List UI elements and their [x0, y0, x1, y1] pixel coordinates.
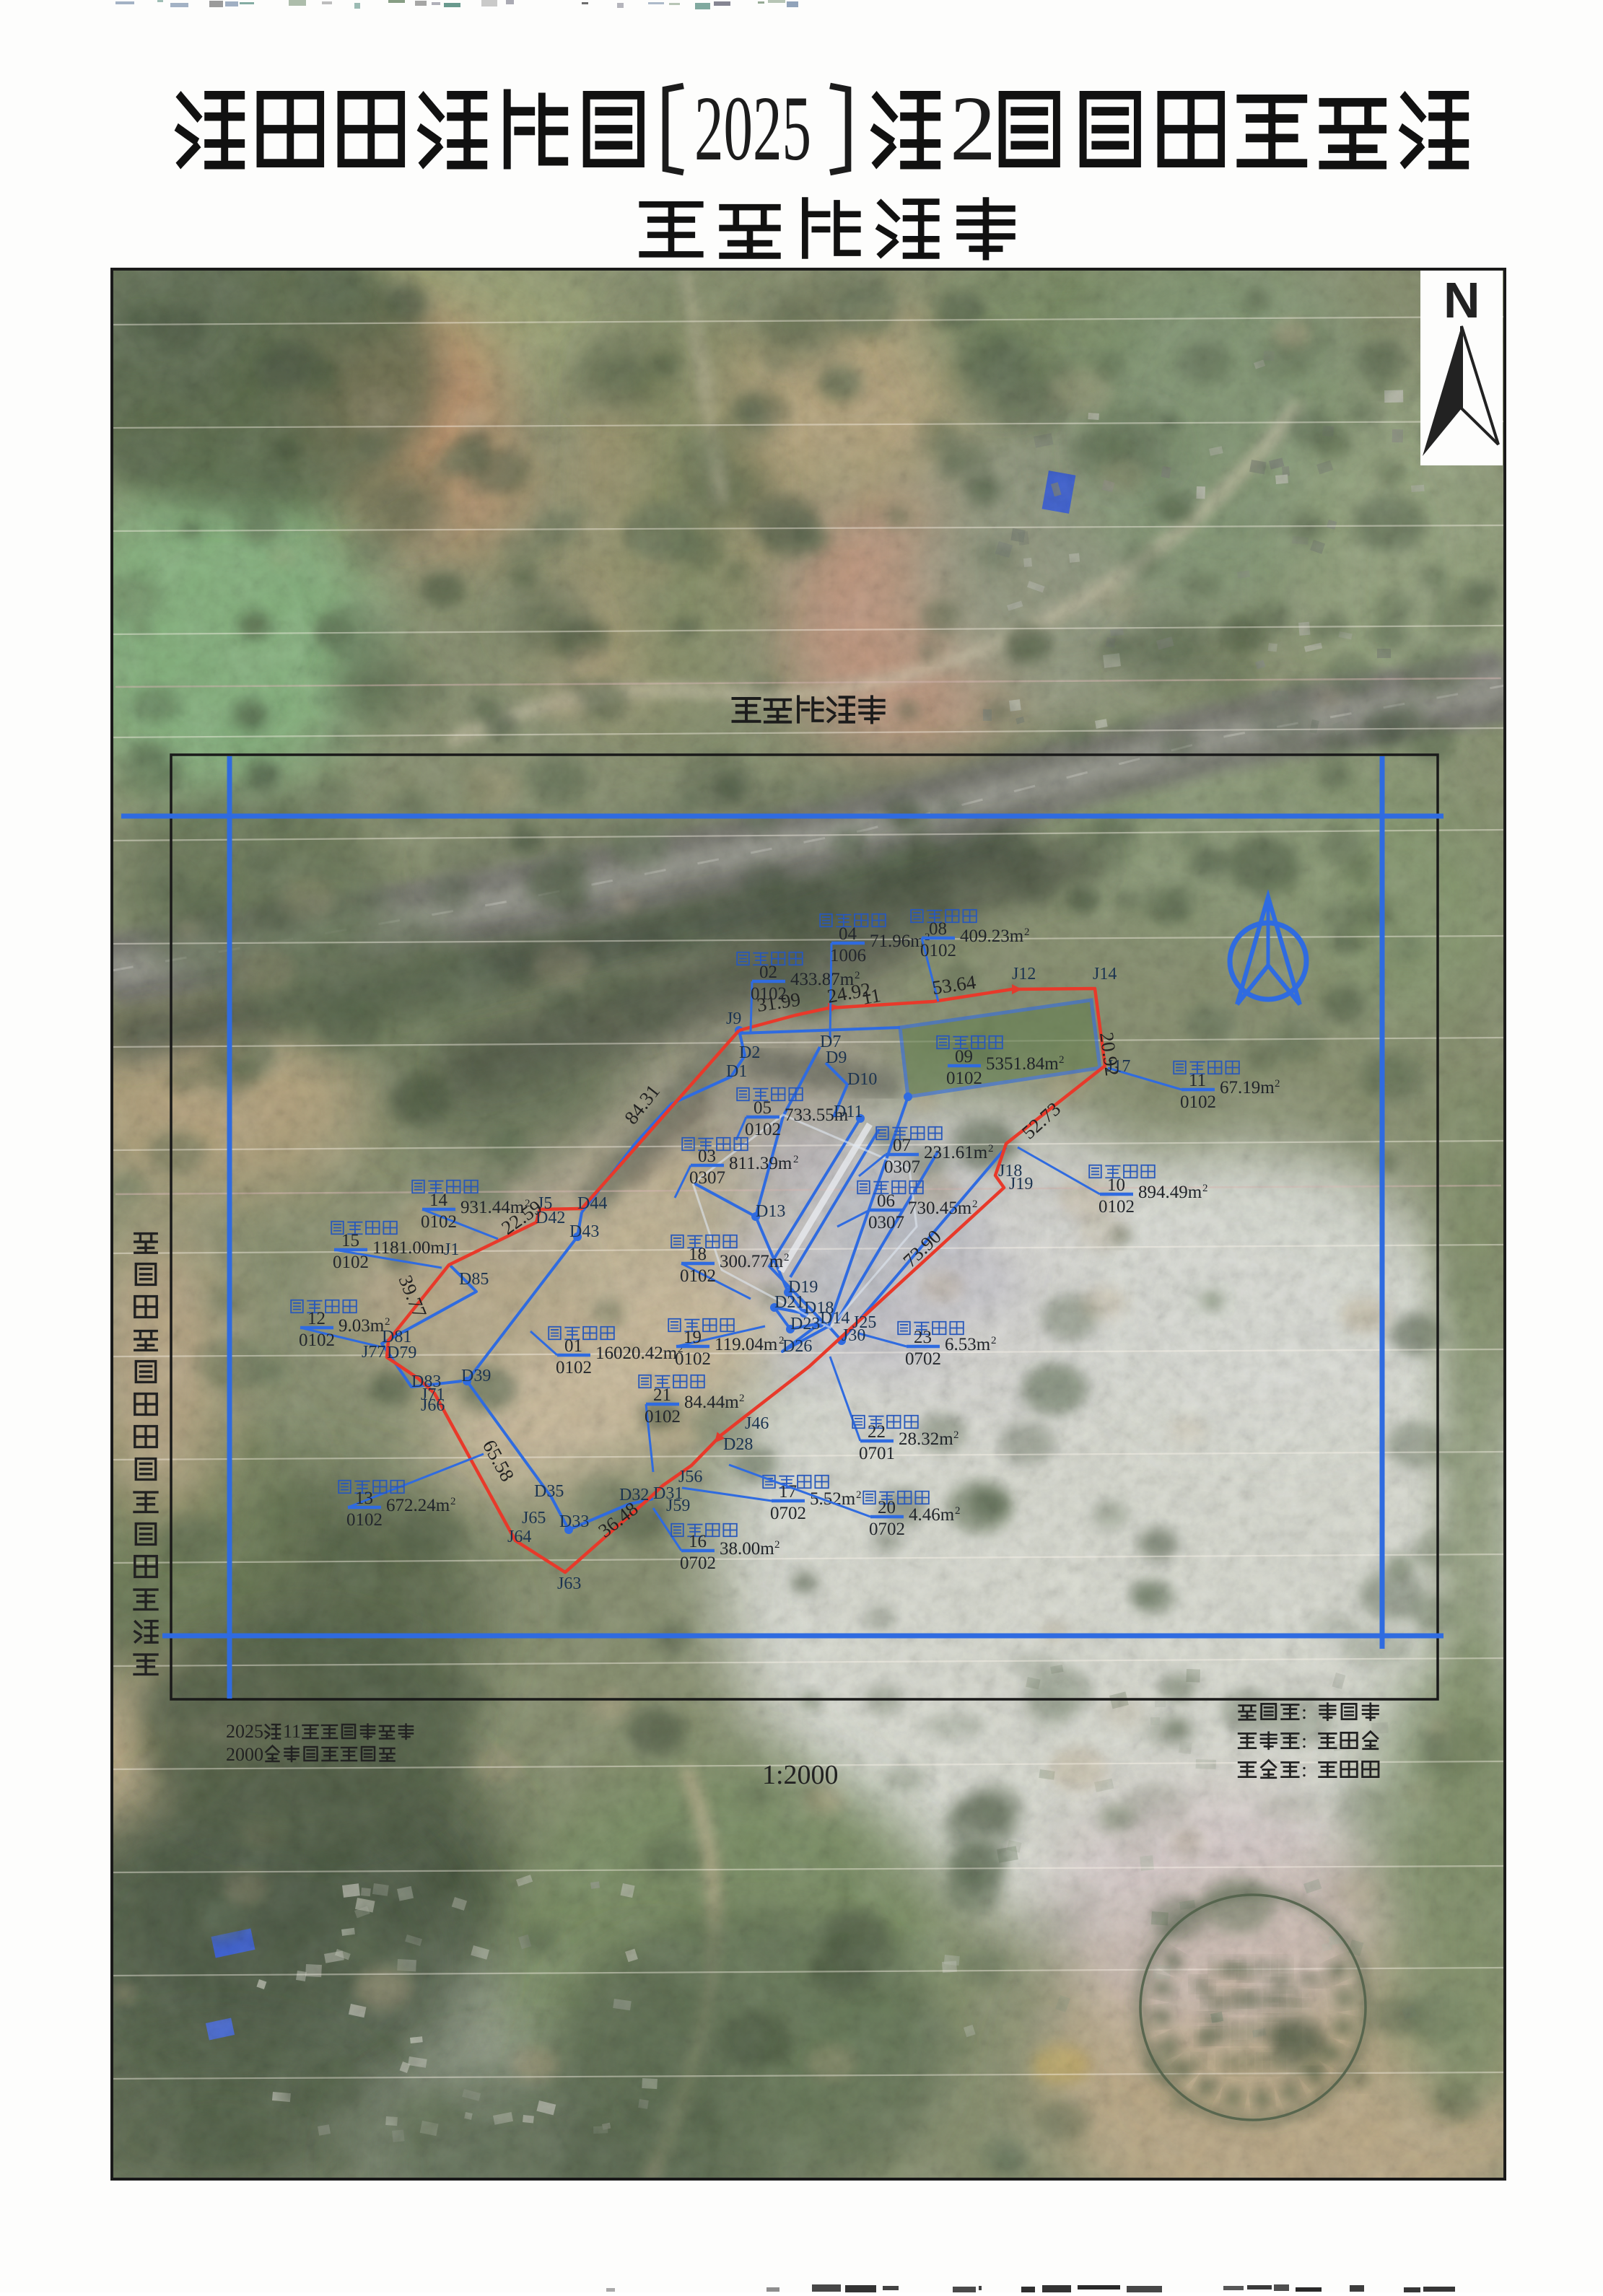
svg-text:D85: D85 [459, 1270, 489, 1289]
svg-text:D10: D10 [847, 1070, 877, 1089]
svg-text:03: 03 [698, 1147, 716, 1166]
svg-text:2: 2 [955, 1505, 961, 1517]
svg-text:119.04m: 119.04m [715, 1335, 778, 1354]
svg-text:D11: D11 [834, 1103, 862, 1121]
svg-text:1: 1 [292, 1721, 301, 1742]
svg-text:0702: 0702 [869, 1520, 905, 1539]
svg-text:2: 2 [739, 1393, 745, 1404]
svg-text::: : [1301, 1758, 1307, 1782]
svg-text:J66: J66 [421, 1396, 445, 1415]
svg-text:J59: J59 [666, 1497, 690, 1515]
svg-text:0102: 0102 [675, 1349, 711, 1369]
svg-text:J77: J77 [362, 1343, 385, 1362]
svg-text:18: 18 [689, 1245, 707, 1264]
svg-text:07: 07 [893, 1136, 911, 1155]
svg-text:730.45m: 730.45m [908, 1199, 972, 1218]
svg-text:02: 02 [759, 963, 777, 982]
svg-text:0102: 0102 [745, 1120, 781, 1139]
svg-text:2: 2 [1202, 1183, 1208, 1194]
svg-text:2: 2 [991, 1335, 997, 1346]
svg-text:2: 2 [226, 1721, 235, 1742]
svg-text:0307: 0307 [868, 1213, 904, 1232]
svg-text:0102: 0102 [645, 1407, 681, 1427]
svg-text:08: 08 [929, 919, 947, 939]
svg-text:894.49m: 894.49m [1138, 1183, 1202, 1202]
svg-text:2: 2 [245, 1721, 254, 1742]
svg-text:811.39m: 811.39m [729, 1154, 792, 1173]
svg-text:14: 14 [429, 1191, 448, 1210]
svg-text:672.24m: 672.24m [386, 1496, 450, 1515]
svg-text:09: 09 [955, 1047, 973, 1066]
svg-text:2: 2 [856, 1489, 862, 1501]
svg-text:71.96m: 71.96m [870, 932, 925, 951]
svg-text:04: 04 [839, 924, 857, 944]
svg-text:1006: 1006 [830, 946, 866, 965]
svg-text:0: 0 [254, 1744, 263, 1765]
svg-text:12: 12 [307, 1309, 326, 1328]
svg-text:0102: 0102 [920, 941, 956, 960]
svg-text:D23: D23 [790, 1315, 820, 1333]
svg-text:2: 2 [1275, 1078, 1280, 1090]
svg-text:84.44m: 84.44m [684, 1393, 739, 1412]
svg-text:13: 13 [355, 1489, 373, 1508]
svg-text:2: 2 [784, 1252, 790, 1263]
svg-text:0102: 0102 [556, 1358, 592, 1377]
svg-text:0: 0 [245, 1744, 254, 1765]
svg-text:409.23m: 409.23m [960, 926, 1024, 946]
svg-text:D9: D9 [826, 1048, 847, 1067]
svg-text:0702: 0702 [905, 1349, 941, 1369]
svg-text:0102: 0102 [1180, 1092, 1216, 1112]
svg-text::: : [1301, 1730, 1307, 1753]
svg-text:D21: D21 [774, 1293, 804, 1312]
svg-text:D1: D1 [726, 1062, 747, 1081]
svg-text:15: 15 [341, 1231, 359, 1250]
svg-text::: : [1301, 1701, 1307, 1724]
svg-text:J65: J65 [522, 1509, 546, 1528]
svg-text:67.19m: 67.19m [1220, 1078, 1275, 1097]
svg-text:21: 21 [653, 1385, 671, 1405]
svg-text:01: 01 [564, 1336, 582, 1356]
svg-text:0102: 0102 [346, 1510, 383, 1530]
svg-text:0702: 0702 [680, 1554, 716, 1573]
svg-text:0307: 0307 [689, 1168, 725, 1188]
svg-text:J1: J1 [444, 1240, 459, 1259]
svg-text:J46: J46 [745, 1414, 769, 1433]
svg-text:N: N [1443, 272, 1480, 328]
svg-text:11: 11 [860, 984, 883, 1009]
svg-text:231.61m: 231.61m [924, 1143, 988, 1162]
svg-text:J64: J64 [507, 1528, 531, 1546]
svg-text:0102: 0102 [1098, 1197, 1135, 1217]
svg-text:4.46m: 4.46m [909, 1505, 955, 1525]
svg-text:D33: D33 [559, 1512, 589, 1531]
svg-text:2: 2 [774, 1539, 780, 1551]
svg-text:2: 2 [385, 1316, 390, 1328]
svg-text:0102: 0102 [299, 1331, 335, 1350]
svg-text:23: 23 [914, 1328, 932, 1347]
svg-text:0102: 0102 [333, 1253, 369, 1272]
svg-text:10: 10 [1107, 1175, 1125, 1195]
svg-text:28.32m: 28.32m [899, 1429, 953, 1449]
svg-text:2: 2 [1059, 1054, 1065, 1066]
svg-text:2: 2 [450, 1496, 456, 1507]
svg-text:2: 2 [953, 1429, 959, 1441]
svg-text:0: 0 [235, 1721, 245, 1742]
svg-text:16: 16 [689, 1532, 707, 1551]
svg-text:0102: 0102 [946, 1069, 982, 1088]
svg-text:D28: D28 [723, 1435, 753, 1454]
svg-text:0702: 0702 [770, 1504, 806, 1523]
svg-text:D39: D39 [461, 1367, 491, 1385]
svg-text:0701: 0701 [859, 1444, 895, 1463]
svg-text:J12: J12 [1012, 965, 1036, 983]
svg-text:2025: 2025 [694, 77, 811, 180]
svg-text:D44: D44 [577, 1194, 607, 1213]
svg-text:2: 2 [1024, 926, 1030, 938]
svg-text:06: 06 [877, 1191, 895, 1211]
svg-text:J9: J9 [726, 1009, 741, 1028]
svg-text:9.03m: 9.03m [338, 1316, 385, 1336]
svg-text:0: 0 [235, 1744, 245, 1765]
svg-text:0102: 0102 [421, 1212, 457, 1232]
svg-text:20: 20 [878, 1498, 896, 1517]
svg-text:J63: J63 [557, 1574, 581, 1593]
svg-text:2: 2 [226, 1744, 235, 1765]
svg-text:0307: 0307 [884, 1157, 920, 1177]
svg-text:05: 05 [754, 1098, 772, 1118]
svg-text:6.53m: 6.53m [945, 1335, 991, 1354]
svg-text:16020.42m: 16020.42m [595, 1344, 678, 1363]
svg-text:38.00m: 38.00m [720, 1539, 774, 1559]
svg-text:D43: D43 [569, 1222, 599, 1241]
svg-text:D14: D14 [820, 1309, 849, 1328]
svg-text:22: 22 [868, 1422, 886, 1442]
svg-text:D35: D35 [534, 1482, 564, 1501]
svg-text:5: 5 [254, 1721, 263, 1742]
svg-text:1181.00m: 1181.00m [372, 1238, 445, 1258]
svg-text:0102: 0102 [680, 1266, 716, 1286]
svg-text:J14: J14 [1093, 965, 1117, 983]
svg-text:D26: D26 [782, 1337, 812, 1356]
svg-text:D79: D79 [387, 1344, 416, 1362]
svg-text:2: 2 [793, 1154, 799, 1165]
svg-text:J19: J19 [1009, 1175, 1033, 1193]
svg-text:19: 19 [683, 1328, 702, 1347]
svg-text:D2: D2 [739, 1043, 760, 1062]
svg-text:2: 2 [972, 1199, 978, 1210]
svg-text:5351.84m: 5351.84m [986, 1054, 1059, 1074]
svg-text:2: 2 [950, 77, 996, 180]
svg-text:11: 11 [1189, 1071, 1206, 1090]
svg-text:5.52m: 5.52m [810, 1489, 856, 1509]
svg-text:D13: D13 [756, 1202, 785, 1221]
svg-text:1:2000: 1:2000 [762, 1760, 839, 1790]
svg-text:300.77m: 300.77m [720, 1252, 784, 1271]
svg-text:2: 2 [988, 1143, 994, 1154]
svg-text:J25: J25 [852, 1313, 876, 1332]
